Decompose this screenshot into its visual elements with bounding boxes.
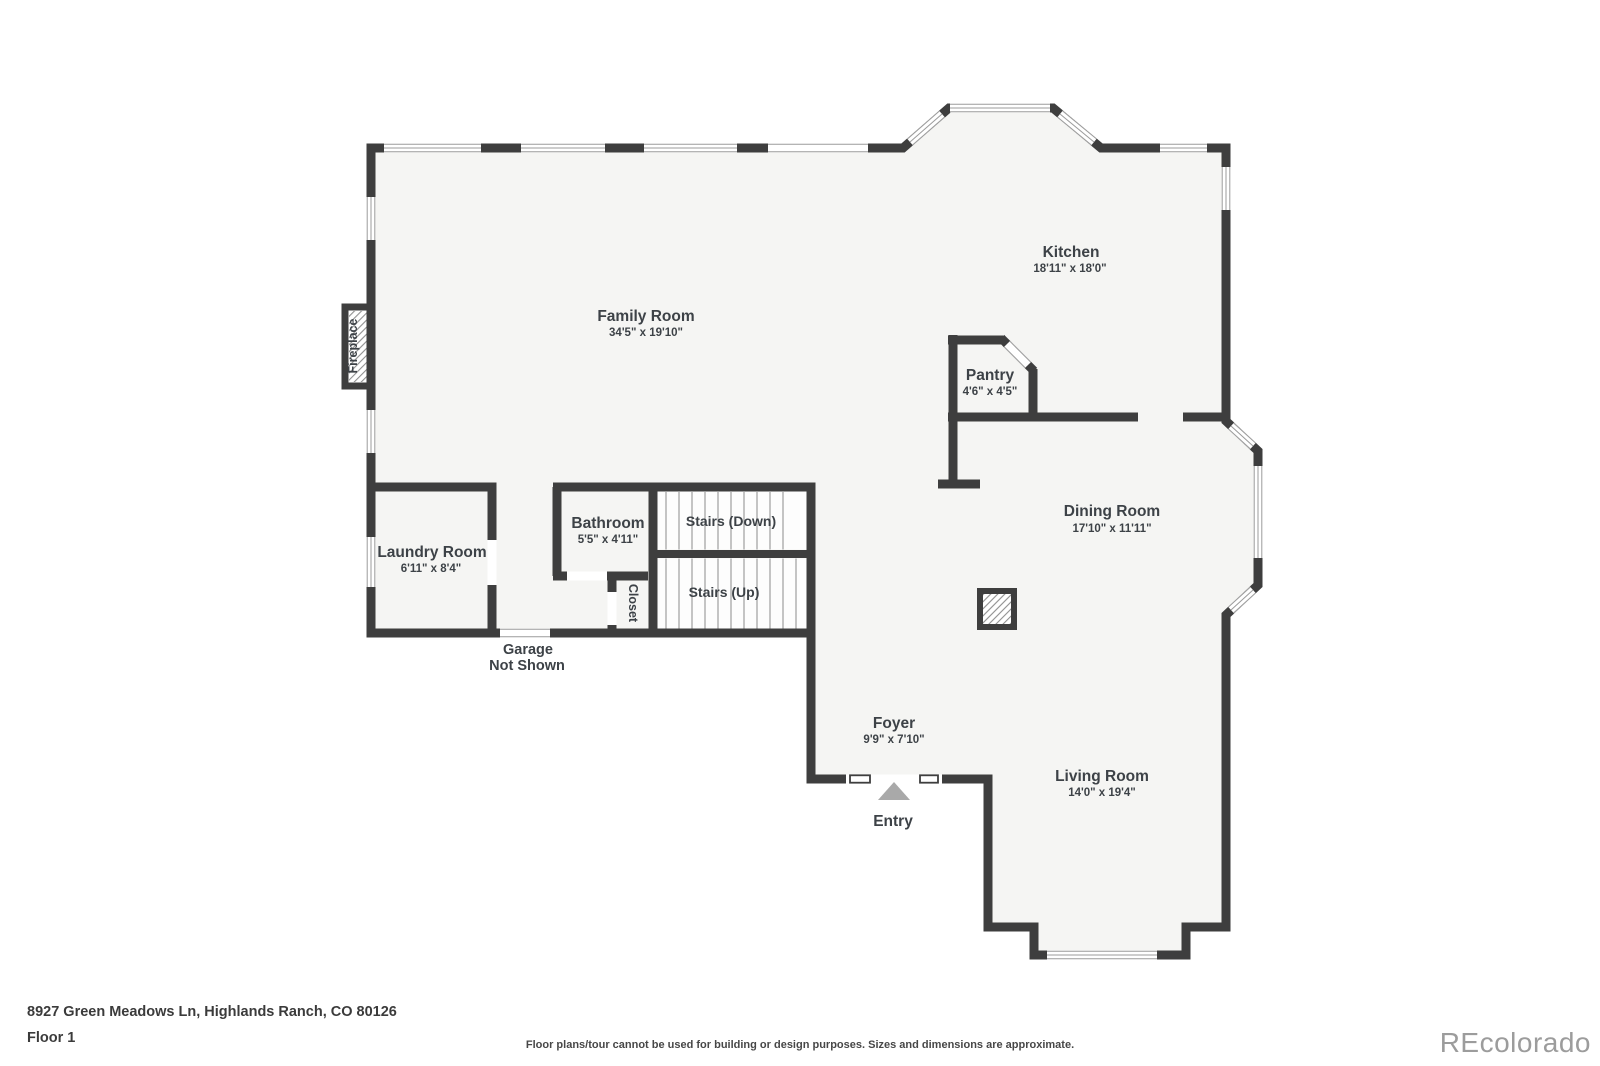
label-living-room: Living Room bbox=[1055, 768, 1149, 785]
label-pantry-dims: 4'6" x 4'5" bbox=[963, 386, 1018, 398]
label-kitchen: Kitchen bbox=[1043, 244, 1100, 261]
floor-plan-canvas: Family Room 34'5" x 19'10" Kitchen 18'11… bbox=[0, 0, 1600, 1066]
label-stairs-up: Stairs (Up) bbox=[689, 584, 760, 600]
wall-opening bbox=[768, 144, 868, 153]
label-laundry-room: Laundry Room bbox=[377, 544, 486, 561]
label-bathroom: Bathroom bbox=[571, 515, 644, 532]
label-laundry-room-dims: 6'11" x 8'4" bbox=[401, 563, 462, 575]
label-dining-room-dims: 17'10" x 11'11" bbox=[1072, 523, 1151, 535]
label-garage-line1: Garage bbox=[503, 642, 553, 658]
label-closet: Closet bbox=[626, 584, 640, 623]
label-living-room-dims: 14'0" x 19'4" bbox=[1068, 787, 1136, 799]
garage-opening bbox=[500, 629, 550, 638]
support-column bbox=[980, 591, 1014, 627]
recolorado-watermark: REcolorado bbox=[1440, 1027, 1591, 1059]
floorplan-page: Family Room 34'5" x 19'10" Kitchen 18'11… bbox=[0, 0, 1600, 1066]
property-address: 8927 Green Meadows Ln, Highlands Ranch, … bbox=[27, 1004, 397, 1020]
label-entry: Entry bbox=[873, 813, 913, 830]
label-family-room: Family Room bbox=[597, 308, 694, 325]
label-dining-room: Dining Room bbox=[1064, 503, 1160, 520]
label-garage-line2: Not Shown bbox=[489, 658, 565, 674]
label-family-room-dims: 34'5" x 19'10" bbox=[609, 327, 683, 339]
label-pantry: Pantry bbox=[966, 367, 1015, 384]
label-bathroom-dims: 5'5" x 4'11" bbox=[578, 534, 639, 546]
label-foyer-dims: 9'9" x 7'10" bbox=[863, 734, 924, 746]
label-fireplace: Fireplace bbox=[346, 319, 360, 374]
label-stairs-down: Stairs (Down) bbox=[686, 513, 776, 529]
label-foyer: Foyer bbox=[873, 715, 915, 732]
label-kitchen-dims: 18'11" x 18'0" bbox=[1033, 263, 1106, 275]
entry-arrow-icon bbox=[878, 782, 910, 800]
disclaimer-text: Floor plans/tour cannot be used for buil… bbox=[0, 1039, 1600, 1051]
